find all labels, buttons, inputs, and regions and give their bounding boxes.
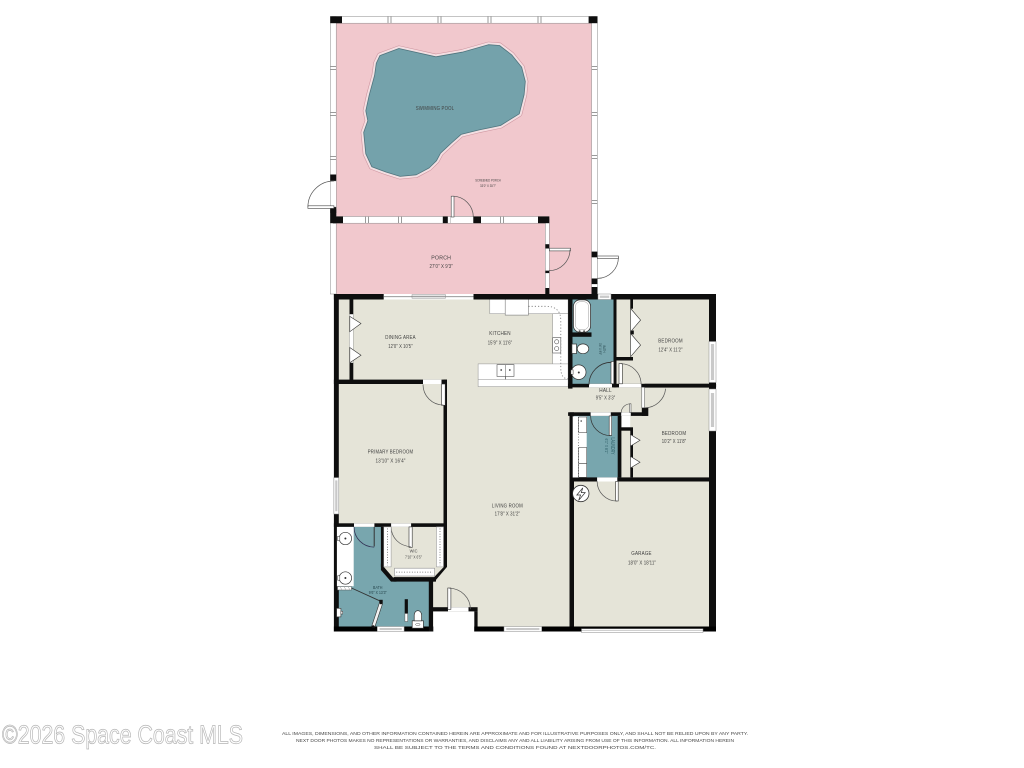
svg-text:3'4" X 9'5": 3'4" X 9'5" <box>598 343 602 355</box>
svg-text:9'6" X 13'3": 9'6" X 13'3" <box>369 590 387 595</box>
svg-text:WIC: WIC <box>410 548 418 553</box>
svg-text:18'0" X 18'11": 18'0" X 18'11" <box>628 560 656 566</box>
svg-text:SWIMMING POOL: SWIMMING POOL <box>416 106 455 112</box>
svg-text:PORCH: PORCH <box>431 255 451 261</box>
svg-text:DINING AREA: DINING AREA <box>385 335 416 341</box>
svg-text:33'0" X 35'7": 33'0" X 35'7" <box>480 184 497 188</box>
svg-text:10'2" X 11'8": 10'2" X 11'8" <box>662 439 687 445</box>
svg-text:KITCHEN: KITCHEN <box>489 331 511 337</box>
svg-text:HALL: HALL <box>599 388 612 394</box>
svg-text:6'1" X 8'1": 6'1" X 8'1" <box>604 439 609 454</box>
svg-text:BEDROOM: BEDROOM <box>662 431 687 437</box>
svg-text:7'10" X 6'5": 7'10" X 6'5" <box>405 554 422 559</box>
svg-text:GARAGE: GARAGE <box>631 551 652 557</box>
svg-text:9'5" X 3'3": 9'5" X 3'3" <box>596 395 616 401</box>
svg-text:12'0" X 10'5": 12'0" X 10'5" <box>388 344 413 350</box>
svg-text:©2026 Space Coast MLS: ©2026 Space Coast MLS <box>2 722 243 750</box>
svg-text:LAUNDRY: LAUNDRY <box>609 438 615 455</box>
svg-text:12'4" X 11'2": 12'4" X 11'2" <box>659 347 683 353</box>
svg-text:PRIMARY BEDROOM: PRIMARY BEDROOM <box>368 450 414 456</box>
svg-text:15'9" X 11'6": 15'9" X 11'6" <box>488 341 513 347</box>
svg-text:BEDROOM: BEDROOM <box>658 338 683 344</box>
svg-text:17'8" X 31'2": 17'8" X 31'2" <box>495 511 521 517</box>
svg-text:27'0" X 9'3": 27'0" X 9'3" <box>429 264 453 270</box>
svg-text:SCREENED PORCH: SCREENED PORCH <box>475 178 501 182</box>
svg-text:SHALL BE SUBJECT TO THE TERMS: SHALL BE SUBJECT TO THE TERMS AND CONDIT… <box>374 745 656 750</box>
svg-text:NEXT DOOR PHOTOS MAKES NO REPR: NEXT DOOR PHOTOS MAKES NO REPRESENTATION… <box>296 738 734 743</box>
svg-text:ALL IMAGES, DIMENSIONS, AND OT: ALL IMAGES, DIMENSIONS, AND OTHER INFORM… <box>282 731 748 736</box>
svg-text:13'10" X 16'4": 13'10" X 16'4" <box>376 458 406 464</box>
svg-text:LIVING ROOM: LIVING ROOM <box>492 503 523 509</box>
